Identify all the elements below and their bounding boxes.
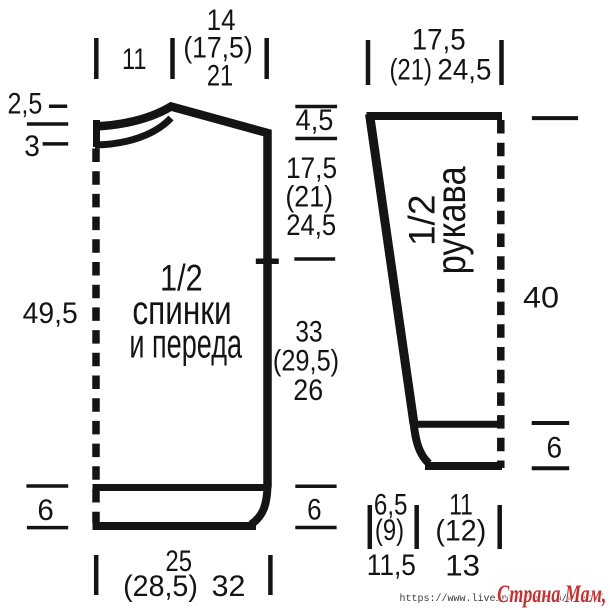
svg-text:Страна Мам,: Страна Мам,	[497, 580, 606, 608]
svg-text:11: 11	[122, 42, 147, 75]
svg-text:3: 3	[24, 130, 40, 163]
svg-text:6: 6	[307, 493, 321, 526]
svg-text:(21): (21)	[389, 53, 431, 86]
svg-text:26: 26	[293, 373, 323, 406]
svg-text:4,5: 4,5	[296, 104, 334, 137]
svg-text:21: 21	[207, 59, 233, 92]
svg-text:11,5: 11,5	[367, 549, 416, 582]
svg-text:13: 13	[445, 549, 480, 582]
svg-text:17,5: 17,5	[412, 24, 466, 57]
svg-text:24,5: 24,5	[286, 208, 336, 241]
svg-text:рукава: рукава	[429, 166, 474, 275]
svg-text:6: 6	[547, 432, 563, 465]
svg-text:49,5: 49,5	[23, 297, 78, 330]
svg-text:(28,5): (28,5)	[123, 571, 198, 603]
svg-text:6: 6	[37, 494, 53, 527]
svg-text:(9): (9)	[375, 514, 404, 547]
svg-text:(12): (12)	[435, 515, 486, 547]
svg-text:40: 40	[523, 281, 559, 314]
svg-text:и переда: и переда	[129, 322, 242, 367]
svg-text:2,5: 2,5	[7, 86, 42, 119]
svg-text:24,5: 24,5	[437, 54, 491, 87]
svg-text:32: 32	[212, 570, 246, 603]
